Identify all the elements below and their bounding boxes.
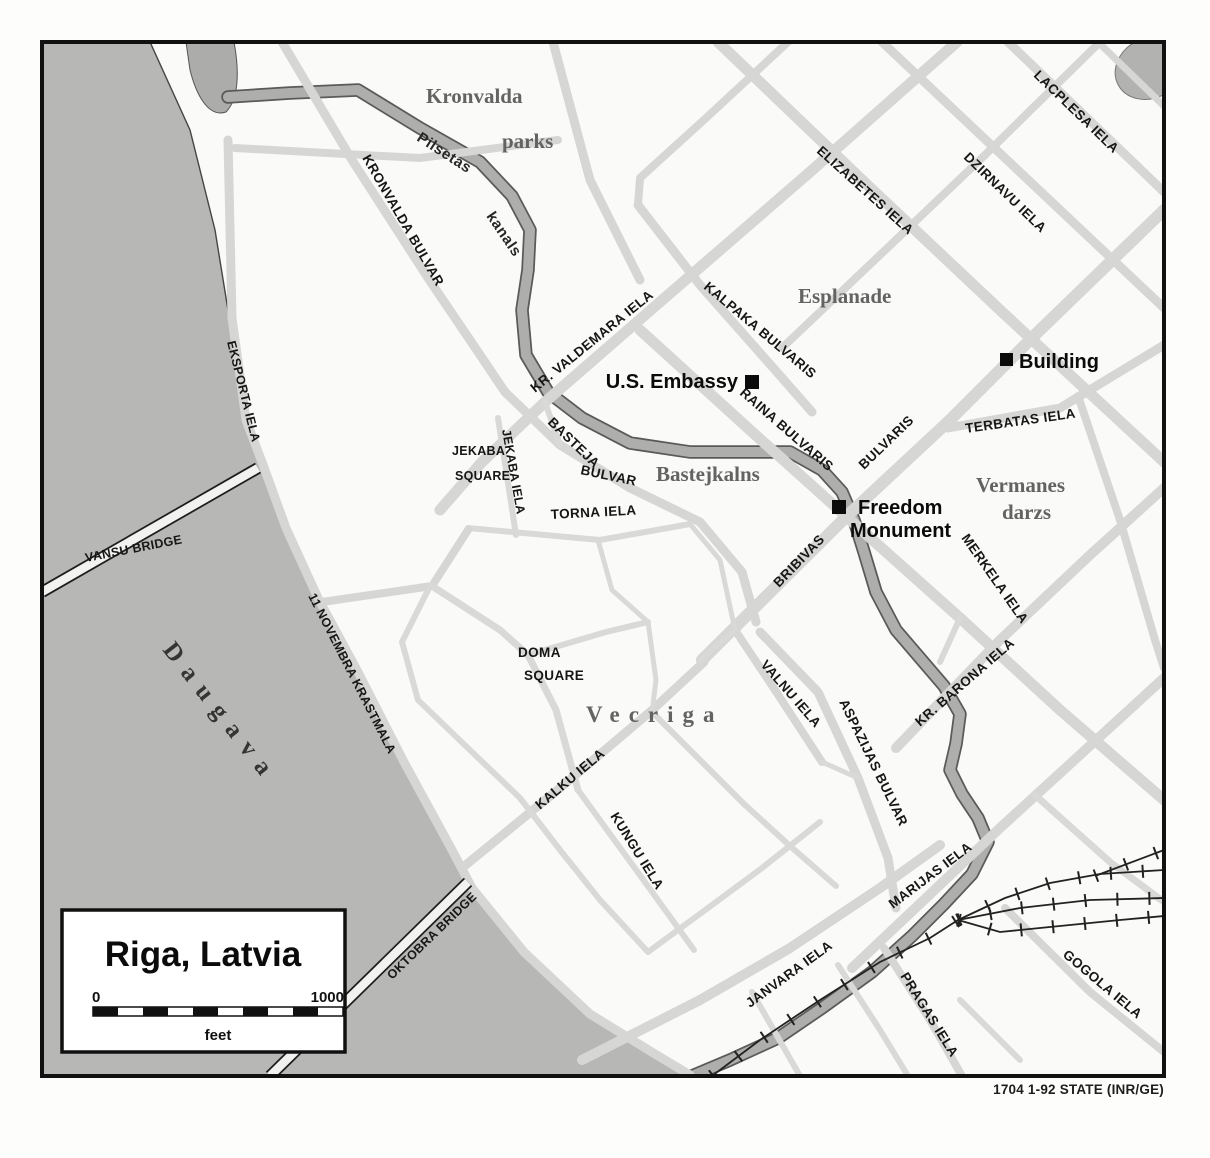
scale-bar: [93, 1007, 343, 1016]
map-credit: 1704 1-92 STATE (INR/GE): [993, 1082, 1164, 1097]
jekaba-square-label-2: SQUARE: [455, 469, 510, 483]
vecriga-label: Vecriga: [586, 702, 724, 727]
building-label: Building: [1019, 351, 1099, 373]
doma-square-label-2: SQUARE: [524, 668, 584, 683]
title-box: Riga, Latvia 0 1000 feet: [62, 910, 345, 1052]
map-page: Daugava Pilsetas kanals Kronvalda parks …: [0, 0, 1210, 1158]
scale-unit-label: feet: [205, 1027, 232, 1044]
esplanade-label: Esplanade: [798, 284, 891, 308]
bastejkalns-label: Bastejkalns: [656, 462, 760, 486]
freedom-monument-marker: [832, 500, 846, 514]
vermanes-darzs-label-1: Vermanes: [976, 473, 1065, 497]
building-marker: [1000, 353, 1013, 366]
jekaba-square-label-1: JEKABA: [452, 444, 505, 458]
freedom-monument-label-1: Freedom: [858, 497, 942, 519]
scale-end-label: 1000: [311, 989, 344, 1006]
kronvalda-parks-label-1: Kronvalda: [426, 84, 523, 108]
freedom-monument-label-2: Monument: [850, 520, 951, 542]
riga-map-svg: Daugava Pilsetas kanals Kronvalda parks …: [0, 0, 1210, 1158]
doma-square-label-1: DOMA: [518, 645, 561, 660]
title-box-frame: [62, 910, 345, 1052]
vermanes-darzs-label-2: darzs: [1002, 500, 1051, 524]
kronvalda-parks-label-2: parks: [502, 129, 553, 153]
map-title: Riga, Latvia: [105, 935, 302, 974]
us-embassy-marker: [745, 375, 759, 389]
scale-start-label: 0: [92, 989, 100, 1006]
us-embassy-label: U.S. Embassy: [606, 371, 739, 393]
